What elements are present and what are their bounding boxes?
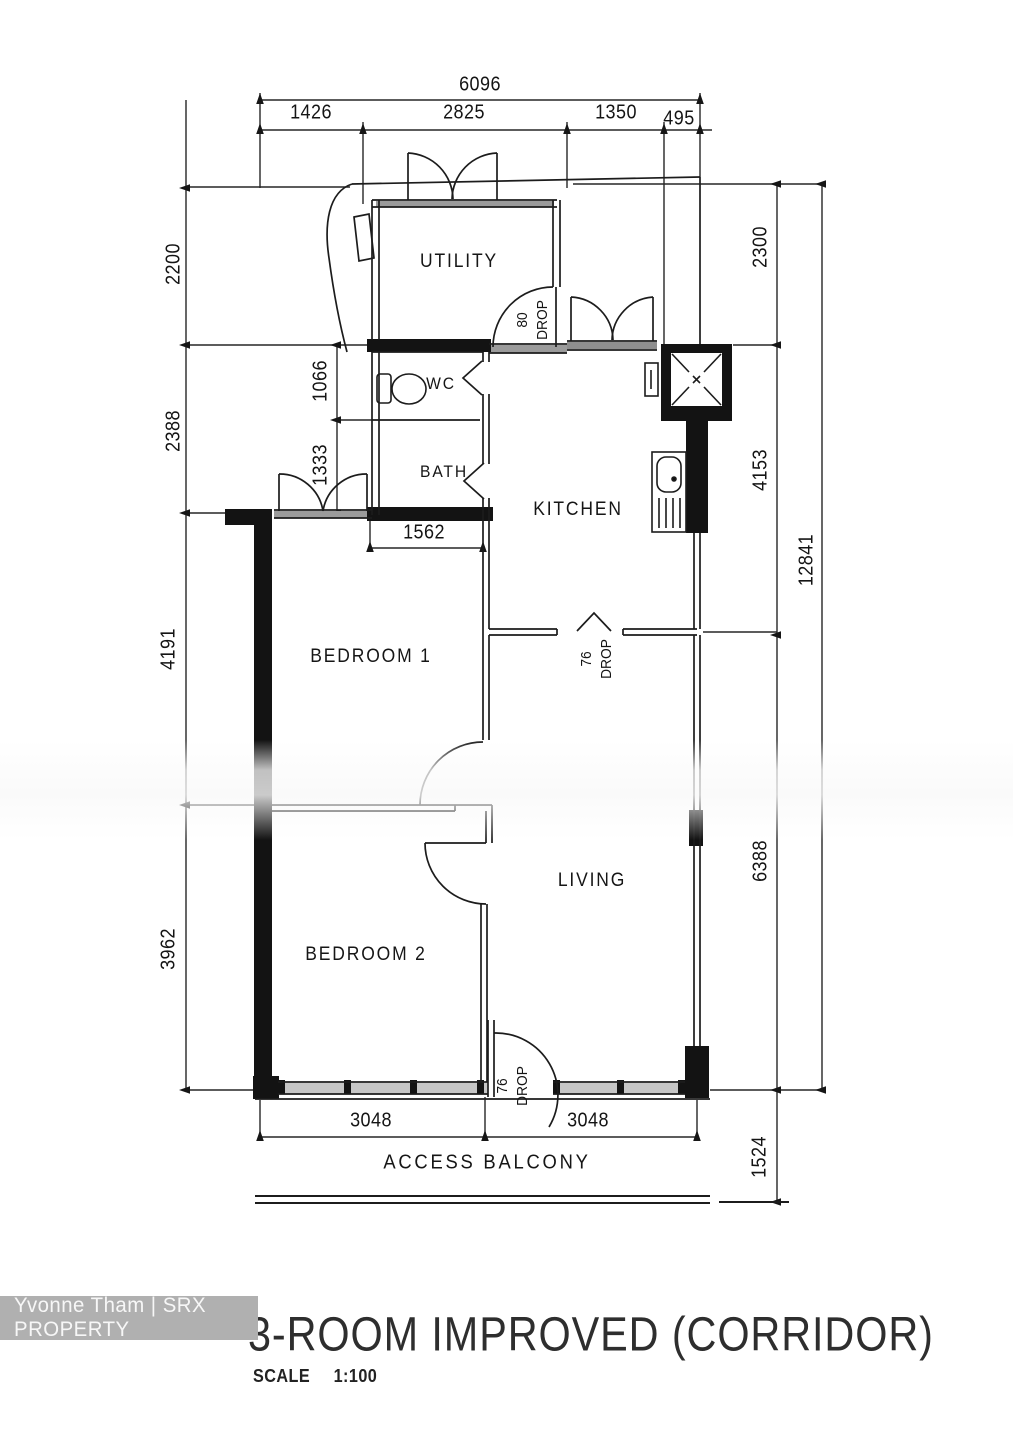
scale-value: 1:100 xyxy=(334,1366,378,1386)
watermark-badge: Yvonne Tham | SRX PROPERTY xyxy=(0,1296,258,1340)
drop-kitchen-word: DROP xyxy=(599,639,616,679)
dim-right-1: 2300 xyxy=(750,226,773,268)
scale-label: SCALE xyxy=(253,1366,310,1386)
dim-bedroom1-height: 4191 xyxy=(158,628,181,670)
dim-left-2: 2388 xyxy=(163,410,186,452)
dim-top-2: 2825 xyxy=(443,102,485,125)
fixtures xyxy=(377,363,686,532)
dimension-lines xyxy=(186,93,822,1202)
room-label-living: LIVING xyxy=(558,870,626,892)
balcony-lines xyxy=(255,1196,789,1203)
dim-bedroom2-height: 3962 xyxy=(158,928,181,970)
walls-solid xyxy=(225,339,732,1099)
room-label-bath: BATH xyxy=(420,462,468,482)
room-label-wc: WC xyxy=(426,374,456,394)
room-label-utility: UTILITY xyxy=(420,251,498,273)
watermark-text: Yvonne Tham | SRX PROPERTY xyxy=(14,1294,251,1342)
room-label-access-balcony: ACCESS BALCONY xyxy=(383,1152,590,1175)
dim-bath-width: 1562 xyxy=(403,522,445,545)
room-label-kitchen: KITCHEN xyxy=(533,499,623,521)
scale-line: SCALE1:100 xyxy=(253,1366,377,1387)
dim-right-4: 1524 xyxy=(749,1136,772,1178)
dim-right-2: 4153 xyxy=(750,449,773,491)
drop-entrance-word: DROP xyxy=(515,1066,532,1106)
drop-label-utility: 80 DROP xyxy=(515,300,551,340)
drop-label-entrance: 76 DROP xyxy=(495,1066,531,1106)
floorplan-drawing xyxy=(0,0,1013,1440)
dim-left-1: 2200 xyxy=(163,243,186,285)
dim-top-total: 6096 xyxy=(459,74,501,97)
dim-bottom-1: 3048 xyxy=(350,1110,392,1133)
dimension-ticks xyxy=(179,93,826,1206)
sink-icon xyxy=(652,452,686,532)
dim-bottom-2: 3048 xyxy=(567,1110,609,1133)
dim-right-total: 12841 xyxy=(796,534,819,586)
dim-right-3: 6388 xyxy=(750,840,773,882)
drop-entrance-num: 76 xyxy=(495,1066,512,1106)
floorplan-page: UTILITY WC BATH KITCHEN BEDROOM 1 BEDROO… xyxy=(0,0,1013,1440)
dim-bath-height: 1333 xyxy=(310,444,333,486)
dim-top-1: 1426 xyxy=(290,102,332,125)
dim-top-4: 495 xyxy=(663,108,694,131)
plan-title: 3-ROOM IMPROVED (CORRIDOR) xyxy=(248,1306,934,1362)
dim-top-3: 1350 xyxy=(595,102,637,125)
shaft-icon xyxy=(671,353,722,406)
room-label-bedroom1: BEDROOM 1 xyxy=(310,646,431,668)
drop-utility-word: DROP xyxy=(535,300,552,340)
dim-wc-height: 1066 xyxy=(310,360,333,402)
drop-kitchen-num: 76 xyxy=(579,639,596,679)
drop-utility-num: 80 xyxy=(515,300,532,340)
drop-label-kitchen: 76 DROP xyxy=(579,639,615,679)
room-label-bedroom2: BEDROOM 2 xyxy=(305,944,426,966)
